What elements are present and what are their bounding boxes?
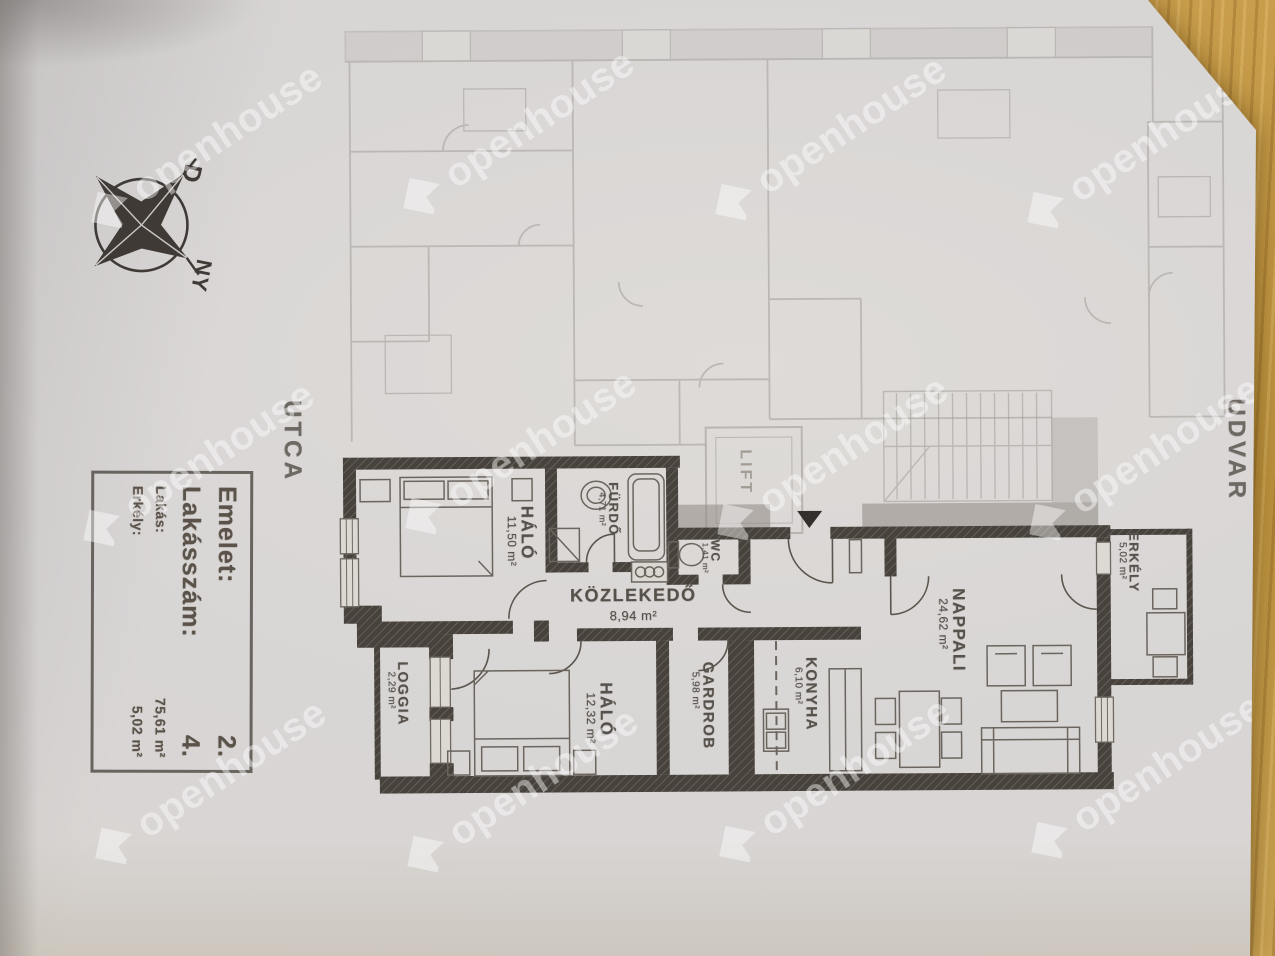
room-area: 24,62 m²	[937, 598, 950, 672]
stamp-balcony-row: Erkély: 5,02 m²	[130, 486, 147, 758]
room-label-halo2: HÁLÓ 12,32 m²	[584, 682, 615, 744]
apartment-stamp: Emelet: 2. Lakásszám: 4. Lakás: 75,61 m²…	[90, 471, 253, 773]
paper-sheet-wrap: HÁLÓ 11,50 m² FÜRDŐ 4,71 m² WC 1,41 m² K…	[0, 0, 1275, 956]
room-name: LIFT	[736, 449, 753, 495]
room-label-lift: LIFT	[736, 449, 753, 495]
room-label-loggia: LOGGIA 2,29 m²	[385, 661, 411, 725]
room-name: NAPPALI	[949, 588, 967, 672]
room-label-nappali: NAPPALI 24,62 m²	[937, 588, 968, 672]
courtyard-label: UDVAR	[1224, 398, 1250, 502]
floor-value: 2.	[212, 735, 241, 758]
stamp-flat-row: Lakás: 75,61 m²	[153, 486, 170, 758]
floorplan: HÁLÓ 11,50 m² FÜRDŐ 4,71 m² WC 1,41 m² K…	[0, 0, 1275, 956]
room-area: 5,98 m²	[689, 672, 700, 750]
flat-label: Lakás:	[153, 486, 169, 533]
room-area: 1,41 m²	[700, 543, 709, 574]
room-name: FÜRDŐ	[606, 482, 620, 536]
compass-rose: D NY	[86, 144, 247, 320]
room-area: 12,32 m²	[584, 692, 597, 743]
paper-sheet: HÁLÓ 11,50 m² FÜRDŐ 4,71 m² WC 1,41 m² K…	[0, 0, 1275, 956]
room-area: 8,94 m²	[561, 608, 706, 624]
flat-value: 75,61 m²	[153, 698, 169, 758]
room-area: 11,50 m²	[505, 516, 518, 567]
room-name: HÁLÓ	[597, 682, 615, 743]
apartment-value: 4.	[176, 735, 205, 758]
room-label-furdo: FÜRDŐ 4,71 m²	[597, 482, 620, 536]
room-name: GARDROB	[700, 662, 716, 750]
stamp-floor-row: Emelet: 2.	[212, 486, 242, 758]
staircase	[883, 390, 1052, 501]
room-label-wc: WC 1,41 m²	[700, 539, 721, 573]
room-name: KÖZLEKEDŐ	[561, 585, 706, 607]
room-label-konyha: KONYHA 6,10 m²	[792, 657, 819, 731]
room-area: 2,29 m²	[385, 671, 396, 725]
floor-label: Emelet:	[212, 486, 241, 583]
room-area: 5,02 m²	[1116, 542, 1127, 593]
balcony-label: Erkély:	[130, 486, 146, 536]
room-name: HÁLÓ	[518, 506, 536, 567]
room-area: 4,71 m²	[597, 492, 607, 536]
street-label: UTCA	[280, 400, 306, 483]
apartment-label: Lakásszám:	[176, 486, 205, 638]
room-area: 6,10 m²	[792, 667, 803, 731]
room-label-gardrob: GARDROB 5,98 m²	[689, 662, 716, 750]
faded-background-plan	[345, 26, 1225, 446]
balcony-value: 5,02 m²	[130, 706, 146, 758]
compass-star-icon	[86, 144, 247, 320]
room-name: WC	[709, 539, 722, 573]
room-label-kozlekedo: KÖZLEKEDŐ 8,94 m²	[561, 585, 706, 624]
entrance-arrow-icon	[797, 511, 822, 528]
photo-of-floorplan: HÁLÓ 11,50 m² FÜRDŐ 4,71 m² WC 1,41 m² K…	[0, 0, 1275, 956]
room-name: ERKÉLY	[1127, 532, 1141, 593]
stamp-apartment-row: Lakásszám: 4.	[176, 486, 206, 758]
room-name: KONYHA	[803, 657, 819, 731]
room-label-halo1: HÁLÓ 11,50 m²	[505, 506, 536, 567]
room-name: LOGGIA	[396, 661, 411, 725]
room-label-erkely: ERKÉLY 5,02 m²	[1116, 532, 1141, 593]
